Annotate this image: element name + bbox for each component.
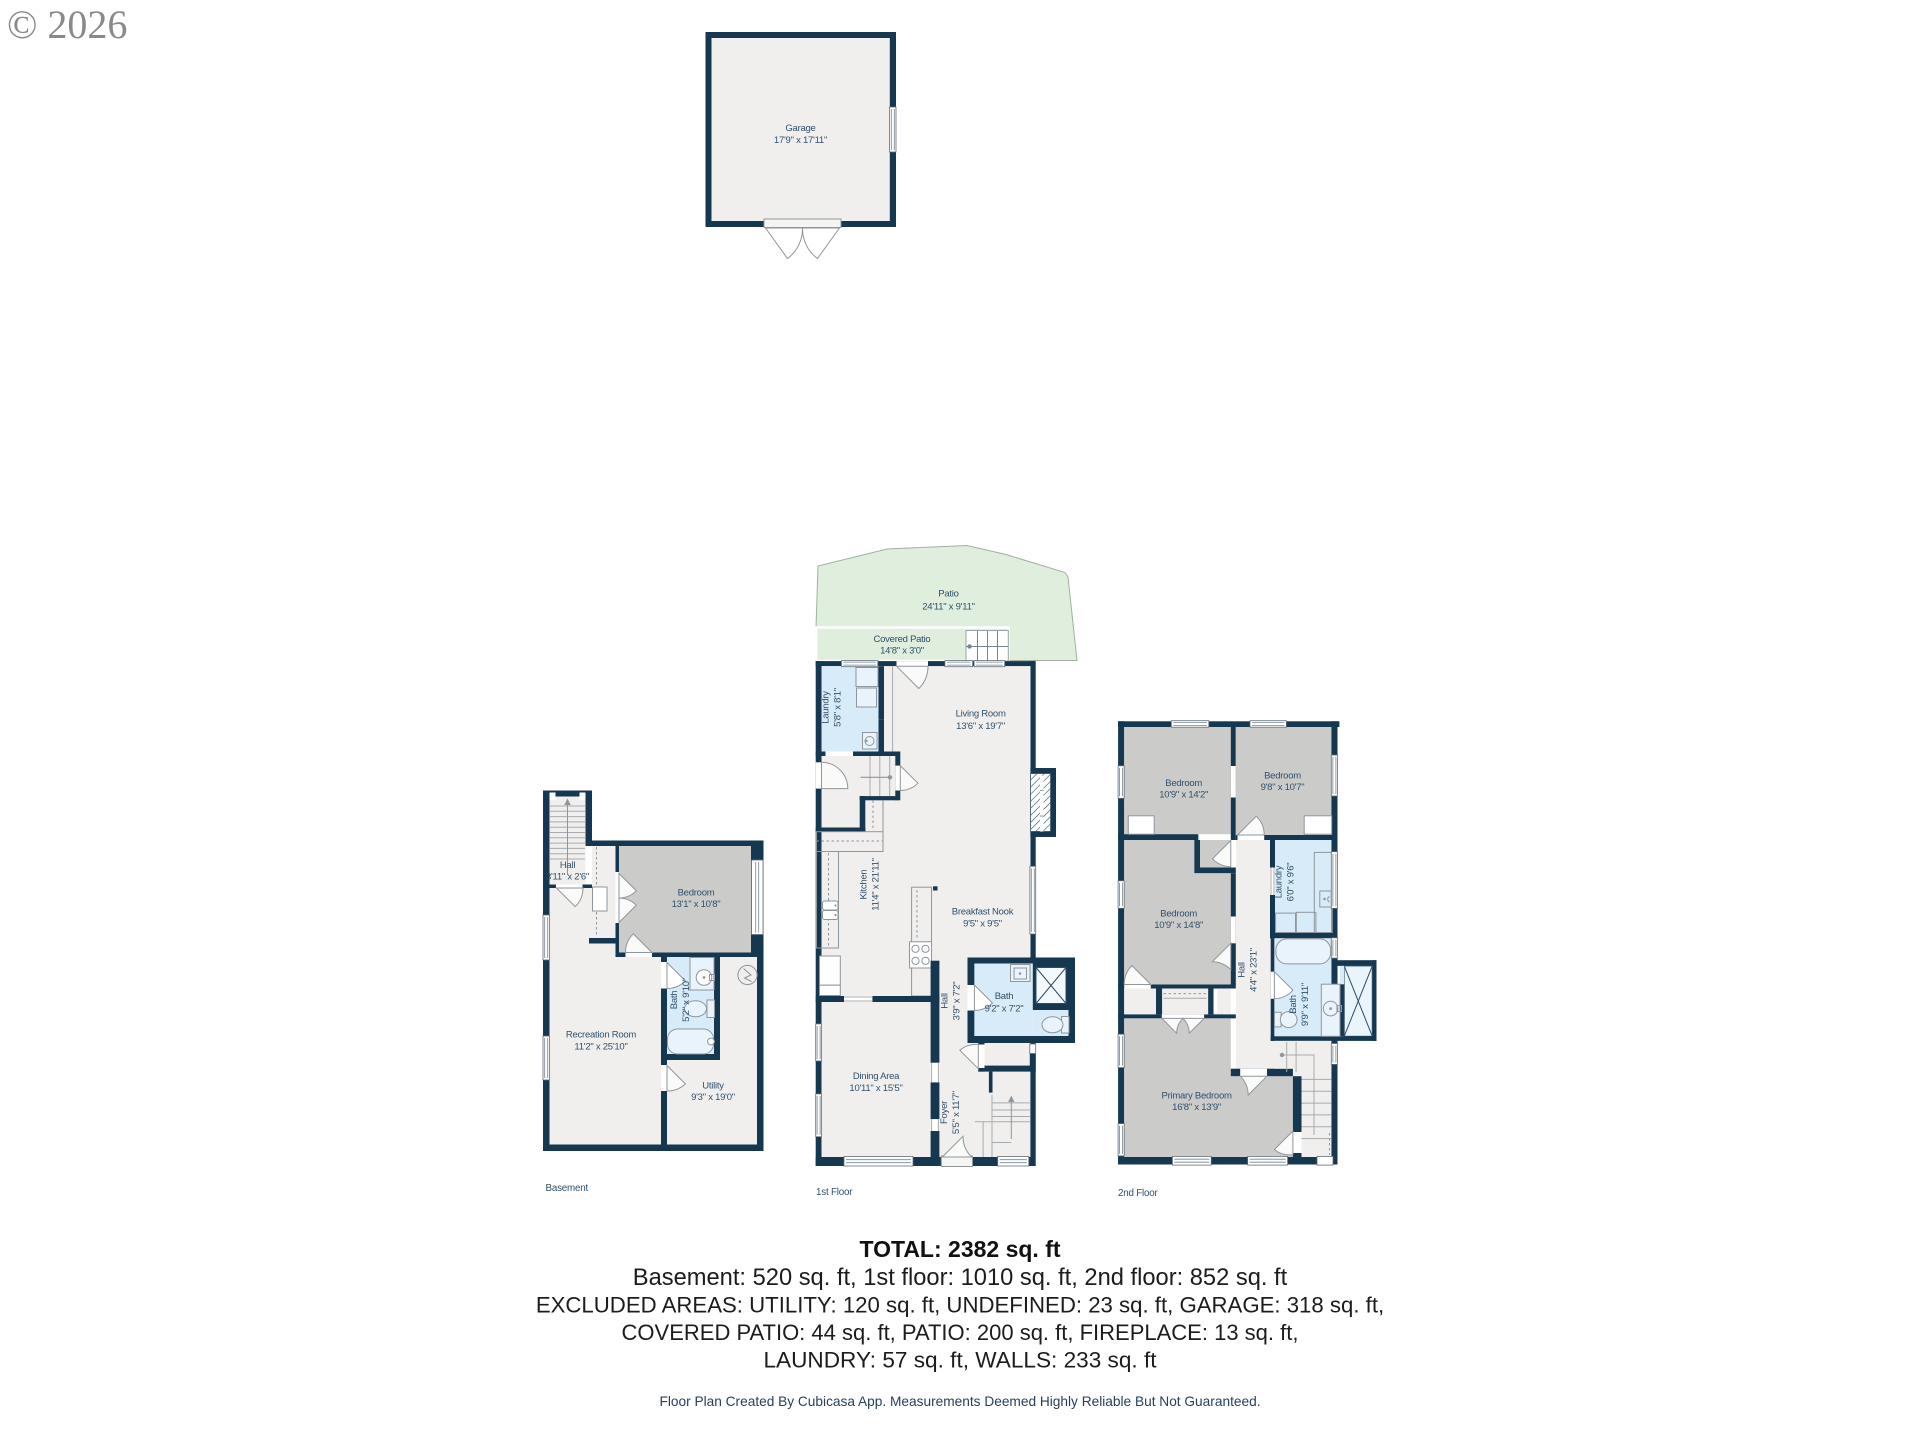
svg-text:3'11" x 2'6": 3'11" x 2'6" (546, 872, 589, 883)
svg-text:10'9" x 14'8": 10'9" x 14'8" (1154, 920, 1203, 931)
svg-text:17'9" x 17'11": 17'9" x 17'11" (774, 135, 827, 146)
svg-text:Laundry5'8" x 8'1": Laundry5'8" x 8'1" (821, 688, 844, 727)
svg-text:9'8" x 10'7": 9'8" x 10'7" (1261, 782, 1305, 793)
svg-text:Living Room: Living Room (956, 709, 1006, 720)
svg-text:Recreation Room: Recreation Room (566, 1030, 637, 1041)
svg-text:Bedroom: Bedroom (1264, 771, 1301, 782)
svg-text:© 2026: © 2026 (7, 2, 127, 47)
svg-text:10'11" x 15'5": 10'11" x 15'5" (849, 1083, 902, 1094)
svg-text:9'5" x 9'5": 9'5" x 9'5" (963, 919, 1002, 930)
svg-text:Dining Area: Dining Area (853, 1071, 900, 1082)
svg-text:Laundry6'0" x 9'6": Laundry6'0" x 9'6" (1274, 863, 1297, 902)
svg-text:11'2" x 25'10": 11'2" x 25'10" (574, 1041, 627, 1052)
svg-text:Bedroom: Bedroom (678, 887, 715, 898)
svg-text:2nd Floor: 2nd Floor (1118, 1188, 1159, 1199)
svg-text:1st Floor: 1st Floor (816, 1187, 853, 1198)
svg-text:Covered Patio: Covered Patio (874, 634, 931, 645)
svg-text:24'11" x 9'11": 24'11" x 9'11" (922, 601, 974, 612)
svg-text:13'1" x 10'8": 13'1" x 10'8" (672, 899, 721, 910)
svg-text:9'2" x 7'2": 9'2" x 7'2" (985, 1004, 1024, 1015)
svg-text:10'9" x 14'2": 10'9" x 14'2" (1159, 790, 1208, 801)
svg-text:Bedroom: Bedroom (1160, 909, 1197, 920)
svg-text:14'8" x 3'0": 14'8" x 3'0" (880, 646, 924, 657)
svg-text:13'6" x 19'7": 13'6" x 19'7" (956, 721, 1005, 732)
svg-text:9'3" x 19'0": 9'3" x 19'0" (691, 1092, 735, 1103)
svg-text:16'8" x 13'9": 16'8" x 13'9" (1172, 1102, 1221, 1113)
svg-text:COVERED PATIO: 44 sq. ft, PATI: COVERED PATIO: 44 sq. ft, PATIO: 200 sq.… (622, 1320, 1299, 1345)
svg-text:Breakfast Nook: Breakfast Nook (952, 906, 1014, 917)
svg-text:Hall: Hall (560, 860, 576, 871)
svg-text:Bath: Bath (995, 991, 1014, 1002)
svg-text:Primary Bedroom: Primary Bedroom (1162, 1090, 1232, 1101)
svg-text:Garage: Garage (785, 123, 815, 134)
svg-text:LAUNDRY: 57 sq. ft, WALLS: 233: LAUNDRY: 57 sq. ft, WALLS: 233 sq. ft (763, 1348, 1157, 1373)
svg-text:EXCLUDED AREAS: UTILITY: 120 s: EXCLUDED AREAS: UTILITY: 120 sq. ft, UND… (536, 1293, 1384, 1318)
svg-text:TOTAL: 2382 sq. ft: TOTAL: 2382 sq. ft (859, 1236, 1060, 1262)
svg-text:Basement: 520 sq. ft, 1st floo: Basement: 520 sq. ft, 1st floor: 1010 sq… (633, 1265, 1288, 1291)
svg-text:Patio: Patio (938, 589, 958, 600)
svg-text:Floor Plan Created By Cubicasa: Floor Plan Created By Cubicasa App. Meas… (659, 1394, 1260, 1409)
svg-text:Basement: Basement (546, 1183, 589, 1194)
svg-text:Bedroom: Bedroom (1165, 778, 1202, 789)
svg-text:Utility: Utility (702, 1080, 724, 1091)
